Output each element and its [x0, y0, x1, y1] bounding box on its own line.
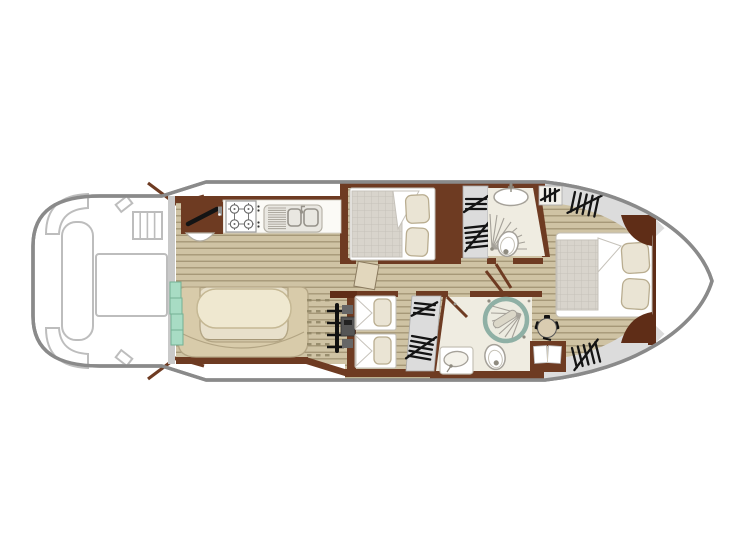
double-bed-icon	[556, 233, 652, 317]
wardrobe-icon	[463, 223, 492, 252]
sink-icon	[264, 205, 322, 232]
boat-floor-plan	[0, 0, 747, 560]
dinette	[178, 287, 308, 357]
helm-instruments-icon	[341, 305, 355, 348]
round-shower-icon	[485, 299, 527, 341]
single-bed-icon	[355, 296, 396, 330]
convertible-area	[306, 293, 334, 363]
dinette-table	[197, 289, 291, 328]
deck-bench	[62, 222, 93, 340]
deck-table	[96, 254, 167, 316]
entry-steps	[170, 282, 183, 345]
wardrobe-column-top	[463, 186, 492, 258]
boarding-steps	[133, 212, 162, 239]
cabin-door-leaf	[354, 261, 379, 289]
floor-plan-canvas	[0, 0, 747, 560]
wardrobe-icon	[464, 196, 488, 212]
single-bed-icon	[355, 334, 396, 368]
book-icon	[533, 346, 561, 364]
helm-shelf	[330, 291, 357, 298]
interior	[168, 181, 656, 380]
small-wardrobe	[539, 186, 562, 205]
hob-icon	[226, 201, 260, 232]
washbasin-icon	[440, 347, 473, 374]
double-bed-icon	[350, 188, 435, 260]
bathroom-aft	[436, 297, 532, 374]
